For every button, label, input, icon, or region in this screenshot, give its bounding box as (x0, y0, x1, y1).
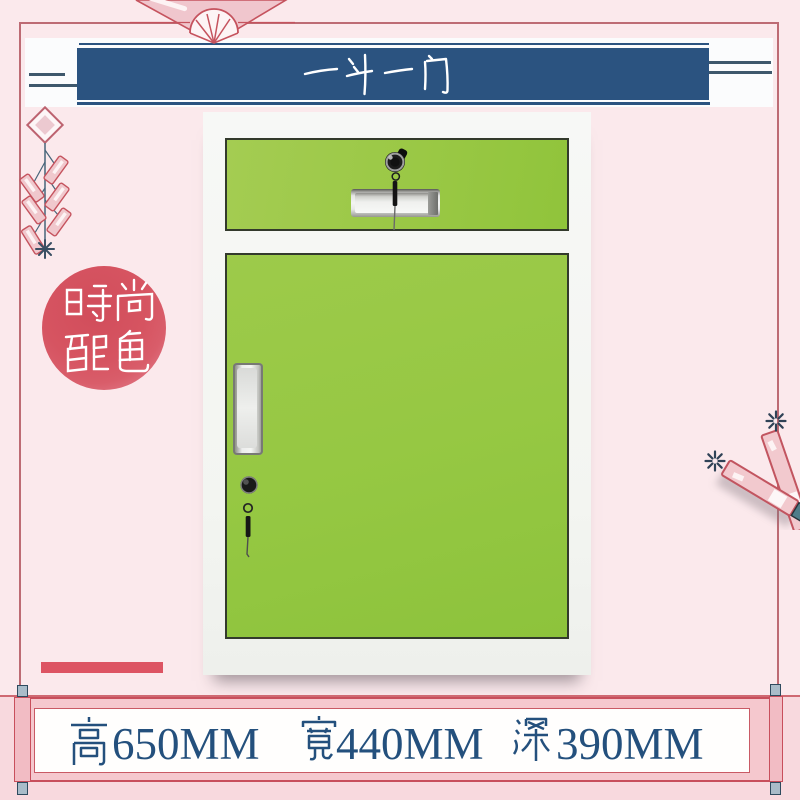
svg-text:440MM: 440MM (336, 719, 484, 769)
svg-text:650MM: 650MM (112, 719, 260, 769)
svg-text:390MM: 390MM (556, 719, 704, 769)
